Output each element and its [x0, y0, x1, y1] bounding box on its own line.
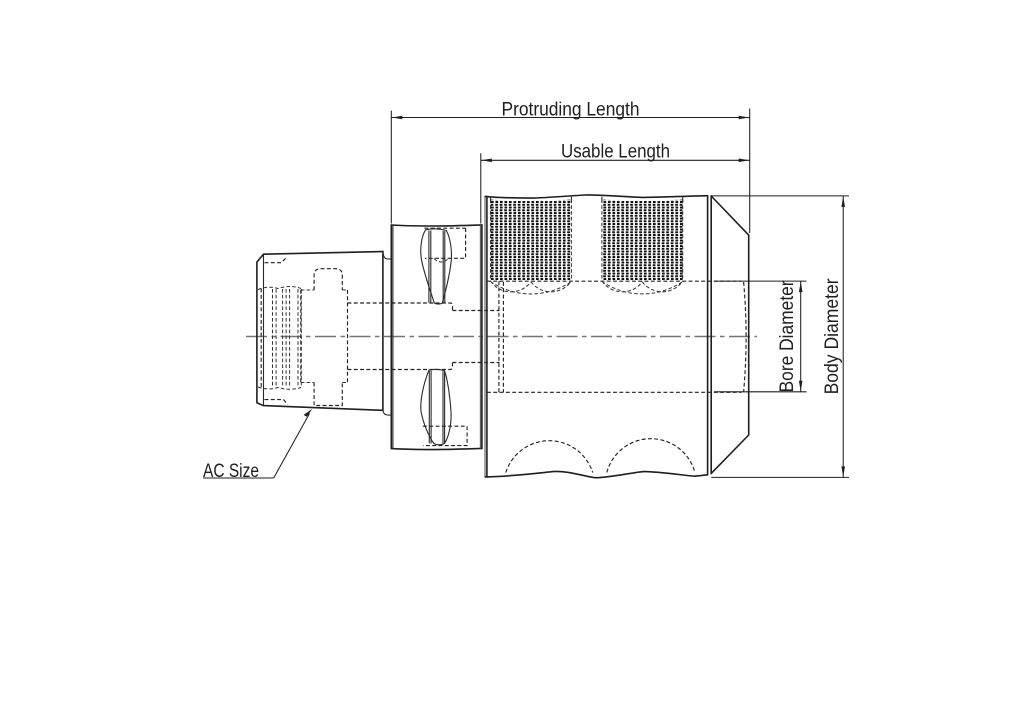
svg-text:Protruding Length: Protruding Length: [502, 99, 640, 120]
svg-text:Bore Diameter: Bore Diameter: [777, 280, 798, 393]
svg-text:Body Diameter: Body Diameter: [822, 278, 843, 395]
svg-text:AC Size: AC Size: [203, 460, 259, 482]
svg-text:Usable Length: Usable Length: [561, 142, 670, 163]
